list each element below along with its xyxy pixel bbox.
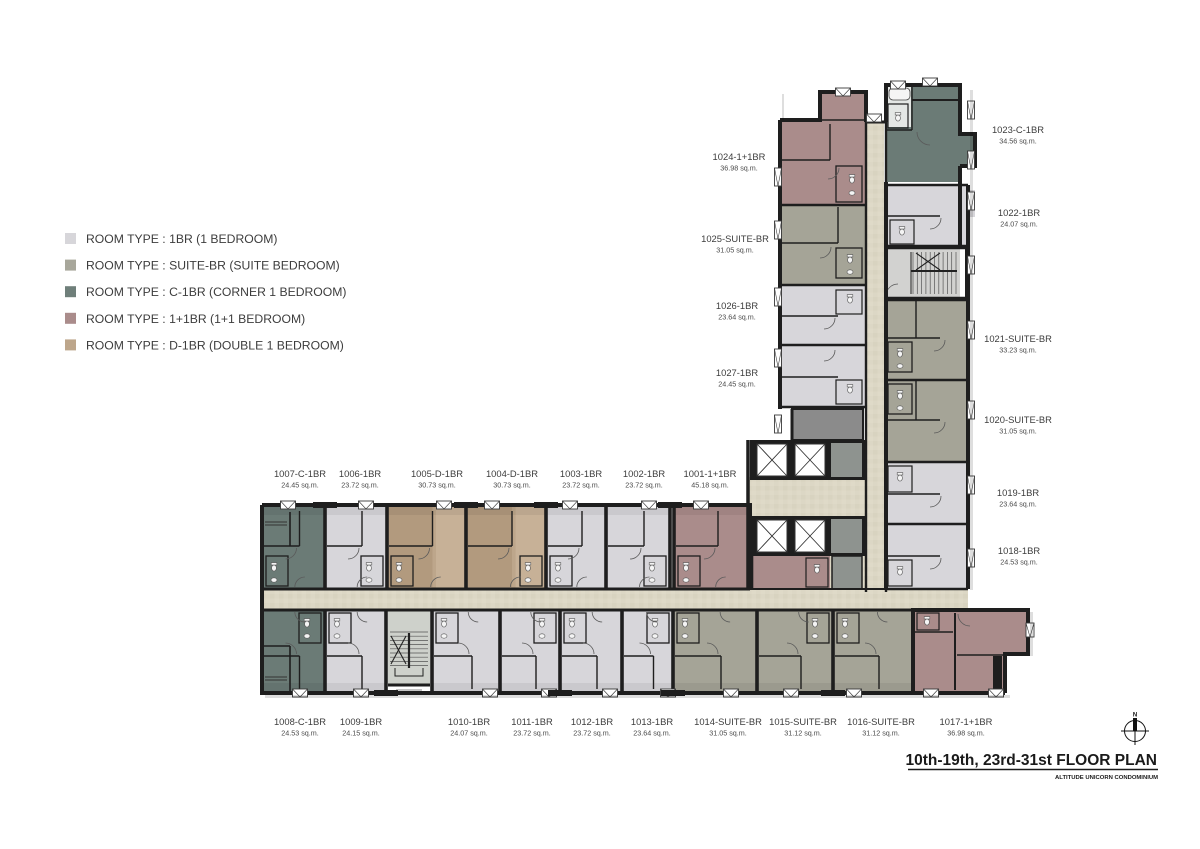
svg-text:23.72 sq.m.: 23.72 sq.m. xyxy=(573,729,611,738)
svg-text:1015-SUITE-BR: 1015-SUITE-BR xyxy=(769,716,837,727)
svg-text:45.18 sq.m.: 45.18 sq.m. xyxy=(691,481,729,490)
svg-text:23.64 sq.m.: 23.64 sq.m. xyxy=(999,500,1037,509)
svg-text:33.23 sq.m.: 33.23 sq.m. xyxy=(999,346,1037,355)
svg-text:1003-1BR: 1003-1BR xyxy=(560,468,602,479)
svg-text:1025-SUITE-BR: 1025-SUITE-BR xyxy=(701,233,769,244)
svg-text:36.98 sq.m.: 36.98 sq.m. xyxy=(720,164,758,173)
svg-text:1016-SUITE-BR: 1016-SUITE-BR xyxy=(847,716,915,727)
svg-text:24.53 sq.m.: 24.53 sq.m. xyxy=(1000,558,1038,567)
svg-text:N: N xyxy=(1133,713,1137,719)
svg-text:30.73 sq.m.: 30.73 sq.m. xyxy=(418,481,456,490)
svg-text:24.53 sq.m.: 24.53 sq.m. xyxy=(281,729,319,738)
svg-text:31.05 sq.m.: 31.05 sq.m. xyxy=(999,427,1037,436)
svg-text:31.05 sq.m.: 31.05 sq.m. xyxy=(716,246,754,255)
svg-text:ALTITUDE UNICORN CONDOMINIUM: ALTITUDE UNICORN CONDOMINIUM xyxy=(1055,775,1158,781)
svg-text:ROOM TYPE : 1BR (1 BEDROOM): ROOM TYPE : 1BR (1 BEDROOM) xyxy=(86,232,277,246)
svg-text:34.56 sq.m.: 34.56 sq.m. xyxy=(999,137,1037,146)
svg-text:1008-C-1BR: 1008-C-1BR xyxy=(274,716,326,727)
svg-text:1009-1BR: 1009-1BR xyxy=(340,716,382,727)
svg-text:31.12 sq.m.: 31.12 sq.m. xyxy=(784,729,822,738)
svg-text:1019-1BR: 1019-1BR xyxy=(997,487,1039,498)
svg-text:10th-19th, 23rd-31st FLOOR PLA: 10th-19th, 23rd-31st FLOOR PLAN xyxy=(906,752,1158,769)
svg-text:1021-SUITE-BR: 1021-SUITE-BR xyxy=(984,333,1052,344)
svg-text:1006-1BR: 1006-1BR xyxy=(339,468,381,479)
svg-text:1022-1BR: 1022-1BR xyxy=(998,207,1040,218)
svg-text:23.64 sq.m.: 23.64 sq.m. xyxy=(718,313,756,322)
svg-text:1023-C-1BR: 1023-C-1BR xyxy=(992,124,1044,135)
svg-text:1018-1BR: 1018-1BR xyxy=(998,545,1040,556)
svg-text:23.72 sq.m.: 23.72 sq.m. xyxy=(341,481,379,490)
svg-text:1027-1BR: 1027-1BR xyxy=(716,367,758,378)
svg-text:1026-1BR: 1026-1BR xyxy=(716,300,758,311)
svg-text:1017-1+1BR: 1017-1+1BR xyxy=(940,716,993,727)
svg-text:ROOM TYPE : D-1BR (DOUBLE 1 BE: ROOM TYPE : D-1BR (DOUBLE 1 BEDROOM) xyxy=(86,338,344,352)
svg-text:1005-D-1BR: 1005-D-1BR xyxy=(411,468,463,479)
svg-text:1013-1BR: 1013-1BR xyxy=(631,716,673,727)
svg-text:1007-C-1BR: 1007-C-1BR xyxy=(274,468,326,479)
svg-text:31.12 sq.m.: 31.12 sq.m. xyxy=(862,729,900,738)
svg-text:ROOM TYPE : SUITE-BR (SUITE BE: ROOM TYPE : SUITE-BR (SUITE BEDROOM) xyxy=(86,259,340,273)
svg-text:1020-SUITE-BR: 1020-SUITE-BR xyxy=(984,414,1052,425)
svg-text:1001-1+1BR: 1001-1+1BR xyxy=(684,468,737,479)
svg-text:24.15 sq.m.: 24.15 sq.m. xyxy=(342,729,380,738)
svg-text:30.73 sq.m.: 30.73 sq.m. xyxy=(493,481,531,490)
svg-text:1011-1BR: 1011-1BR xyxy=(511,716,553,727)
svg-text:23.64 sq.m.: 23.64 sq.m. xyxy=(633,729,671,738)
svg-text:1014-SUITE-BR: 1014-SUITE-BR xyxy=(694,716,762,727)
svg-text:31.05 sq.m.: 31.05 sq.m. xyxy=(709,729,747,738)
svg-text:23.72 sq.m.: 23.72 sq.m. xyxy=(562,481,600,490)
svg-text:ROOM TYPE : C-1BR (CORNER 1 BE: ROOM TYPE : C-1BR (CORNER 1 BEDROOM) xyxy=(86,285,346,299)
svg-text:24.07 sq.m.: 24.07 sq.m. xyxy=(1000,220,1038,229)
svg-text:23.72 sq.m.: 23.72 sq.m. xyxy=(625,481,663,490)
svg-text:1002-1BR: 1002-1BR xyxy=(623,468,665,479)
svg-text:24.45 sq.m.: 24.45 sq.m. xyxy=(718,380,756,389)
svg-text:1010-1BR: 1010-1BR xyxy=(448,716,490,727)
svg-text:1012-1BR: 1012-1BR xyxy=(571,716,613,727)
svg-text:23.72 sq.m.: 23.72 sq.m. xyxy=(513,729,551,738)
svg-text:24.45 sq.m.: 24.45 sq.m. xyxy=(281,481,319,490)
svg-text:36.98 sq.m.: 36.98 sq.m. xyxy=(947,729,985,738)
svg-text:ROOM TYPE : 1+1BR (1+1 BEDROOM: ROOM TYPE : 1+1BR (1+1 BEDROOM) xyxy=(86,312,305,326)
svg-text:1024-1+1BR: 1024-1+1BR xyxy=(713,151,766,162)
svg-text:24.07 sq.m.: 24.07 sq.m. xyxy=(450,729,488,738)
svg-text:1004-D-1BR: 1004-D-1BR xyxy=(486,468,538,479)
